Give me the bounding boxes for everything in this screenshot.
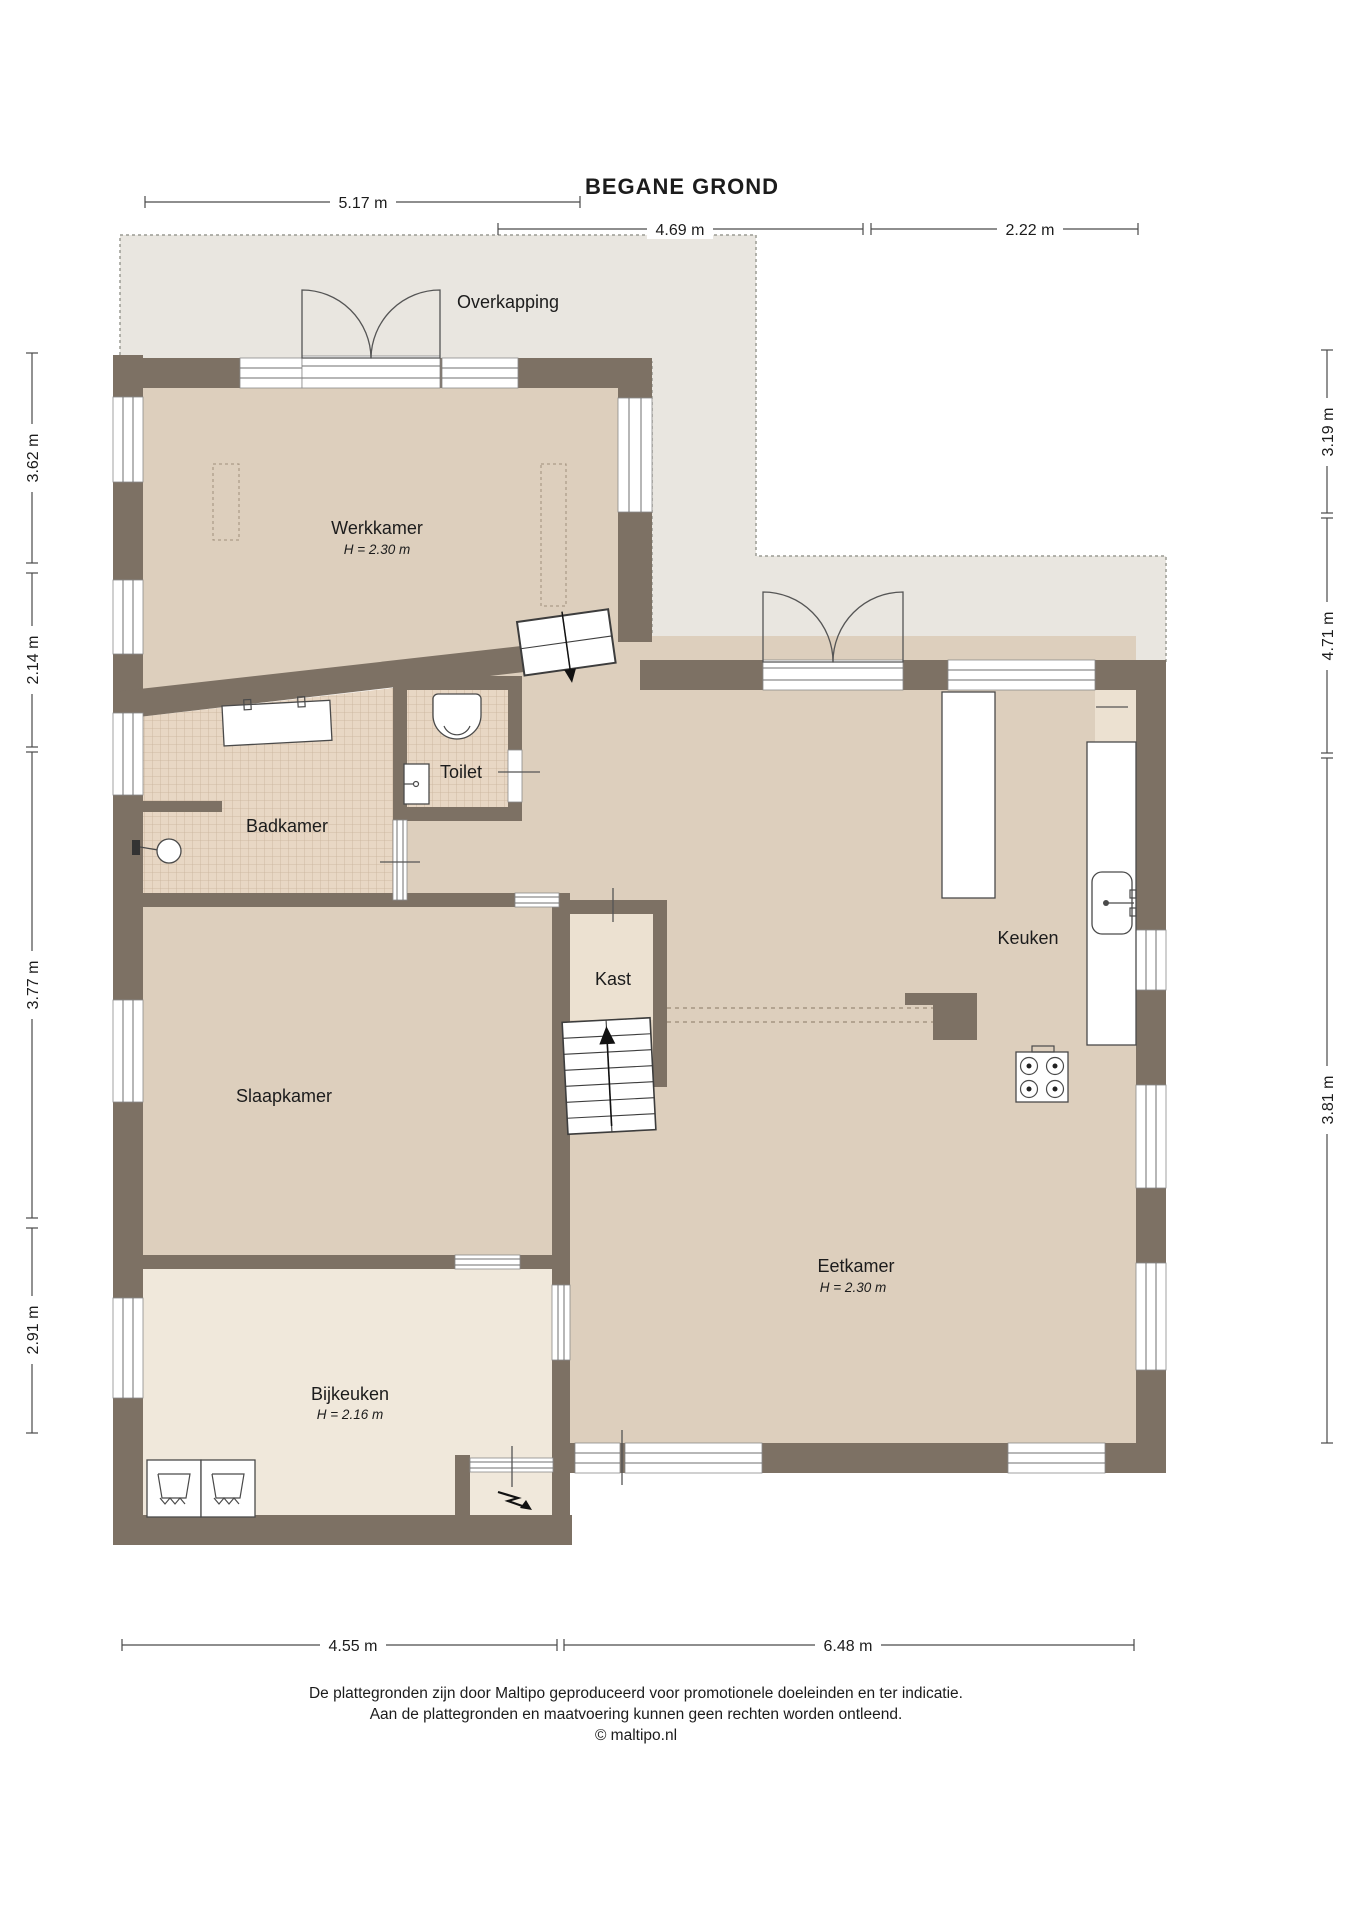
dim-bottom-1: 4.55 m xyxy=(122,1635,557,1655)
bijkeuken-slaapkamer-door xyxy=(455,1255,520,1269)
room-height-bijkeuken: H = 2.16 m xyxy=(317,1407,383,1422)
footer-line-2: Aan de plattegronden en maatvoering kunn… xyxy=(370,1706,903,1723)
svg-text:4.69 m: 4.69 m xyxy=(656,222,705,239)
svg-text:3.81 m: 3.81 m xyxy=(1320,1076,1337,1125)
window xyxy=(948,660,1095,690)
svg-text:3.19 m: 3.19 m xyxy=(1320,408,1337,457)
window xyxy=(113,1000,143,1102)
room-label-bijkeuken: Bijkeuken xyxy=(311,1384,389,1404)
floorplan-page: BEGANE GROND Overkapping xyxy=(0,0,1358,1920)
dim-top-1: 5.17 m xyxy=(145,192,580,212)
overkapping-label: Overkapping xyxy=(457,292,559,312)
room-label-eetkamer: Eetkamer xyxy=(817,1256,894,1276)
room-height-werkkamer: H = 2.30 m xyxy=(344,542,410,557)
svg-text:4.55 m: 4.55 m xyxy=(329,1638,378,1655)
window xyxy=(1136,1263,1166,1370)
window xyxy=(1008,1443,1105,1473)
dim-right-3: 3.81 m xyxy=(1317,758,1337,1443)
window xyxy=(442,358,518,388)
stove-icon xyxy=(1016,1046,1068,1102)
toilet-icon xyxy=(433,694,481,739)
room-label-kast: Kast xyxy=(595,969,631,989)
window xyxy=(1136,1085,1166,1188)
kitchen-sink-icon xyxy=(1092,872,1136,934)
bijkeuken-eetkamer-door xyxy=(552,1285,570,1360)
dim-top-3: 2.22 m xyxy=(871,219,1138,239)
window xyxy=(625,1443,762,1473)
svg-text:4.71 m: 4.71 m xyxy=(1320,612,1337,661)
svg-text:3.62 m: 3.62 m xyxy=(25,434,42,483)
room-label-slaapkamer: Slaapkamer xyxy=(236,1086,332,1106)
kitchen-cabinet xyxy=(942,692,995,898)
svg-text:5.17 m: 5.17 m xyxy=(339,195,388,212)
window xyxy=(113,713,143,795)
window xyxy=(113,397,143,482)
staircase-up xyxy=(562,1018,656,1134)
window xyxy=(113,580,143,654)
kast-floor xyxy=(567,914,653,1020)
window xyxy=(1136,930,1166,990)
page-title: BEGANE GROND xyxy=(585,174,779,199)
room-label-keuken: Keuken xyxy=(997,928,1058,948)
dim-left-1: 3.62 m xyxy=(22,353,42,563)
room-height-eetkamer: H = 2.30 m xyxy=(820,1280,886,1295)
floorplan-canvas: BEGANE GROND Overkapping xyxy=(0,0,1358,1920)
dim-right-1: 3.19 m xyxy=(1317,350,1337,513)
dim-bottom-2: 6.48 m xyxy=(564,1635,1134,1655)
window xyxy=(113,1298,143,1398)
slaapkamer-floor xyxy=(130,907,552,1255)
footer: De plattegronden zijn door Maltipo gepro… xyxy=(309,1685,963,1744)
dim-right-2: 4.71 m xyxy=(1317,518,1337,753)
room-label-badkamer: Badkamer xyxy=(246,816,328,836)
svg-text:2.14 m: 2.14 m xyxy=(25,636,42,685)
dim-left-4: 2.91 m xyxy=(22,1228,42,1433)
dim-left-2: 2.14 m xyxy=(22,573,42,747)
dim-left-3: 3.77 m xyxy=(22,752,42,1218)
washer-icon xyxy=(147,1460,201,1517)
svg-text:2.91 m: 2.91 m xyxy=(25,1306,42,1355)
room-label-toilet: Toilet xyxy=(440,762,482,782)
window xyxy=(618,398,652,512)
keuken-niche xyxy=(1095,690,1136,742)
svg-text:3.77 m: 3.77 m xyxy=(25,961,42,1010)
footer-copyright: © maltipo.nl xyxy=(595,1727,677,1744)
window xyxy=(240,358,302,388)
svg-text:6.48 m: 6.48 m xyxy=(824,1638,873,1655)
footer-line-1: De plattegronden zijn door Maltipo gepro… xyxy=(309,1685,963,1702)
washer-icon xyxy=(201,1460,255,1517)
room-label-werkkamer: Werkkamer xyxy=(331,518,423,538)
toilet-sink-icon xyxy=(404,764,429,804)
svg-text:2.22 m: 2.22 m xyxy=(1006,222,1055,239)
